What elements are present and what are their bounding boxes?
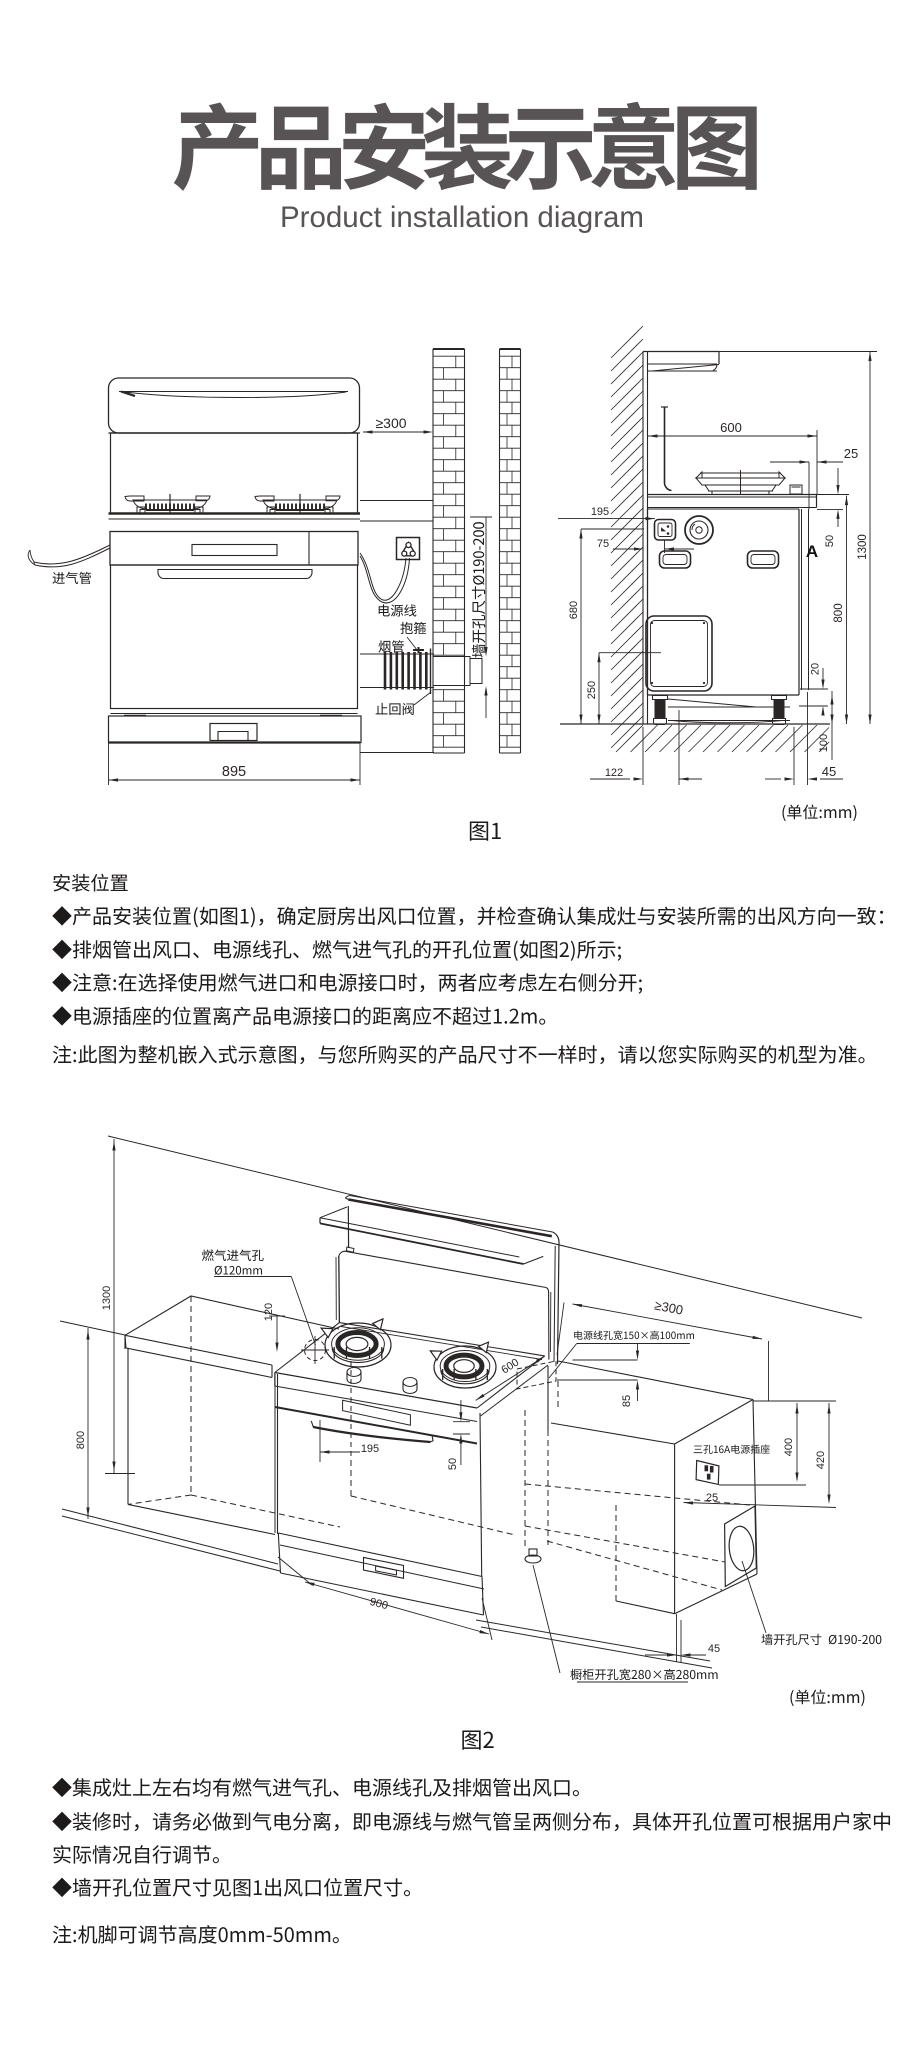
svg-text:85: 85 xyxy=(621,1395,633,1407)
svg-text:≥300: ≥300 xyxy=(653,1297,684,1317)
svg-text:420: 420 xyxy=(815,1451,827,1469)
svg-text:≥300: ≥300 xyxy=(375,415,406,431)
svg-text:A: A xyxy=(806,542,818,561)
svg-text:120: 120 xyxy=(263,1303,275,1321)
svg-text:122: 122 xyxy=(605,767,623,779)
svg-text:20: 20 xyxy=(810,663,822,675)
svg-text:800: 800 xyxy=(75,1431,87,1449)
svg-text:895: 895 xyxy=(222,764,246,780)
svg-text:45: 45 xyxy=(708,1643,720,1655)
svg-text:75: 75 xyxy=(597,538,609,550)
svg-text:680: 680 xyxy=(568,601,580,619)
svg-text:Product installation diagram: Product installation diagram xyxy=(280,201,644,234)
svg-text:25: 25 xyxy=(706,1492,718,1504)
svg-text:900: 900 xyxy=(368,1596,389,1612)
svg-text:45: 45 xyxy=(822,764,836,779)
svg-text:50: 50 xyxy=(824,535,836,547)
svg-text:1300: 1300 xyxy=(857,534,869,560)
svg-text:250: 250 xyxy=(586,681,598,699)
svg-text:800: 800 xyxy=(833,603,845,622)
svg-text:195: 195 xyxy=(361,1443,379,1455)
svg-text:25: 25 xyxy=(844,446,858,461)
svg-text:600: 600 xyxy=(720,420,742,435)
svg-text:50: 50 xyxy=(447,1458,459,1470)
svg-text:100: 100 xyxy=(818,734,830,752)
svg-text:400: 400 xyxy=(783,1438,795,1456)
svg-text:195: 195 xyxy=(591,506,609,518)
svg-text:1300: 1300 xyxy=(101,1286,113,1310)
